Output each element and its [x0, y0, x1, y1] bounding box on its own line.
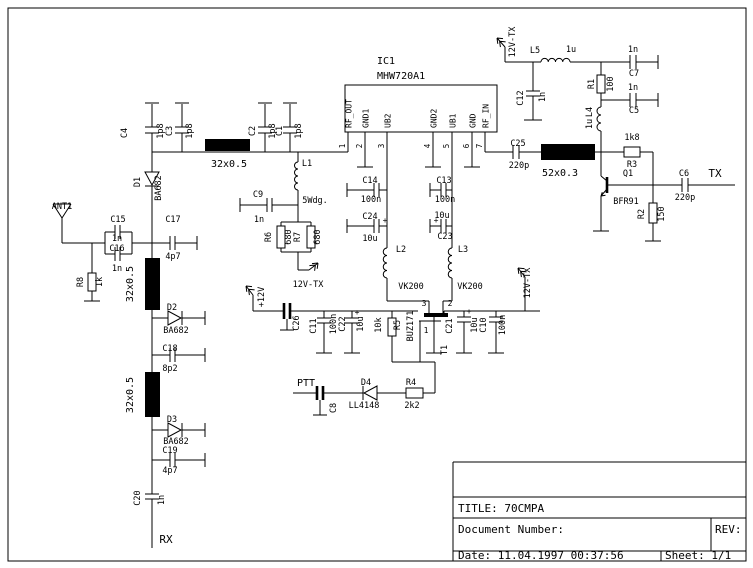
- c20-ref: C20: [133, 490, 143, 505]
- l4-val: 1u: [585, 119, 595, 129]
- c3-val: 1p8: [185, 123, 195, 138]
- ic-text: IC1 MHW720A1: [377, 56, 425, 82]
- ic1-pin-name-ub2: UB2: [384, 113, 393, 128]
- c11-ref: C11: [309, 318, 319, 333]
- cap-c26-symbol: [284, 303, 290, 319]
- r2-val: 150: [657, 206, 667, 221]
- r6-ref: R6: [264, 232, 274, 242]
- r5-val: 10k: [374, 317, 384, 332]
- resistor-r3: [624, 147, 640, 157]
- ic1-pin-name-gnd1: GND1: [362, 109, 371, 128]
- c3-ref: C3: [165, 126, 175, 136]
- ic1-pin-number-5: 5: [442, 144, 451, 149]
- l5-val: 1u: [566, 45, 576, 55]
- r4-ref: R4: [406, 378, 416, 388]
- d2-val: BA682: [163, 326, 189, 336]
- c6-ref: C6: [679, 169, 689, 179]
- c19-val: 4p7: [162, 466, 177, 476]
- supply-12vtx-top: 12V-TX: [508, 26, 518, 58]
- r4-val: 2k2: [404, 401, 419, 411]
- c17-val: 4p7: [165, 252, 180, 262]
- ic1-pin-name-rf_in: RF_IN: [482, 104, 491, 128]
- c21-ref: C21: [445, 318, 455, 333]
- ic1-pin-number-2: 2: [355, 144, 364, 149]
- c4-ref: C4: [120, 128, 130, 138]
- c18-val: 8p2: [162, 364, 177, 374]
- d1-val: BA682: [154, 175, 164, 201]
- c8-ref: C8: [329, 403, 339, 413]
- c12-ref: C12: [516, 90, 526, 105]
- ic1-pin-name-gnd: GND: [469, 113, 478, 128]
- t1-pin3: 3: [422, 299, 427, 308]
- ic1-pin-number-1: 1: [338, 144, 347, 149]
- c5-val: 1n: [628, 83, 638, 93]
- rx-port: RX: [159, 533, 173, 546]
- c14-val: 100n: [361, 195, 381, 205]
- tx-port: TX: [708, 167, 722, 180]
- c5-ref: C5: [629, 106, 639, 116]
- q1-ref: Q1: [623, 169, 633, 179]
- resistor-r4: [406, 388, 423, 398]
- l1-note: 5Wdg.: [302, 196, 328, 206]
- c24-plus: +: [383, 216, 388, 225]
- coax2-label: 32x0.5: [125, 266, 136, 302]
- coax-32x05-left-lower: [145, 372, 160, 417]
- d3-ref: D3: [167, 415, 177, 425]
- ic1-part: MHW720A1: [377, 71, 425, 82]
- ic1-ref: IC1: [377, 56, 395, 67]
- r1-ref: R1: [587, 79, 597, 89]
- c19-ref: C19: [162, 446, 177, 456]
- r5-ref: R5: [393, 320, 403, 330]
- l2-ref: L2: [396, 245, 406, 255]
- d4-val: LL4148: [349, 401, 380, 411]
- schematic-page: IC1 MHW720A1 TITLE: 70CMPA Document Numb…: [0, 0, 753, 568]
- q1-val: BFR91: [613, 197, 639, 207]
- d2-ref: D2: [167, 303, 177, 313]
- c14-ref: C14: [362, 176, 377, 186]
- ant-ref: ANT1: [52, 202, 72, 212]
- r7-ref: R7: [293, 232, 303, 242]
- c20-val: 1n: [157, 495, 167, 505]
- c25-val: 220p: [509, 161, 529, 171]
- c17-ref: C17: [165, 215, 180, 225]
- c26-ref: C26: [292, 315, 302, 330]
- c9-val: 1n: [254, 215, 264, 225]
- l2-val: VK200: [398, 282, 424, 292]
- l1-ref: L1: [302, 159, 312, 169]
- t1-pin2: 2: [448, 299, 453, 308]
- l3-ref: L3: [458, 245, 468, 255]
- coax-32x05-left-upper: [145, 258, 160, 310]
- c1-val: 1p8: [294, 123, 304, 138]
- supply-12vtx-mid: 12V-TX: [293, 280, 325, 290]
- c24-val: 10u: [362, 234, 377, 244]
- r7-val: 680: [313, 229, 323, 244]
- diode-d2: [168, 311, 181, 325]
- supply-12vtx-right: 12V-TX: [523, 267, 533, 299]
- coax1-label: 32x0.5: [211, 159, 247, 170]
- t1-val: BUZ171: [406, 311, 416, 342]
- c10-ref: C10: [479, 317, 489, 332]
- c9-ref: C9: [253, 190, 263, 200]
- c16-ref: C16: [109, 244, 124, 254]
- c6-val: 220p: [675, 193, 695, 203]
- c22-val: 10u: [356, 316, 366, 331]
- r8-ref: R8: [76, 277, 86, 287]
- coax-52x03: [541, 144, 595, 160]
- schematic-canvas: IC1 MHW720A1 TITLE: 70CMPA Document Numb…: [0, 0, 753, 568]
- c16-val: 1n: [112, 264, 122, 274]
- c22-ref: C22: [338, 316, 348, 331]
- title-block-text: TITLE: 70CMPA Document Number: REV: Date…: [458, 502, 742, 562]
- rev-text: REV:: [715, 523, 742, 536]
- ic1-pin-number-4: 4: [423, 143, 432, 148]
- c10-val: 100n: [498, 315, 508, 335]
- c7-ref: C7: [629, 69, 639, 79]
- l5-ref: L5: [530, 46, 540, 56]
- coax-32x05-top: [205, 139, 250, 151]
- c25-ref: C25: [510, 139, 525, 149]
- c24-ref: C24: [362, 212, 377, 222]
- diode-d4: [364, 386, 377, 400]
- c7-val: 1n: [628, 45, 638, 55]
- r8-val: 1k: [95, 277, 105, 287]
- resistor-r1: [597, 75, 605, 93]
- ic1-pin-name-rf_out: RF_OUT: [345, 99, 354, 128]
- c18-ref: C18: [162, 344, 177, 354]
- r2-ref: R2: [637, 209, 647, 219]
- c13-val: 100n: [435, 195, 455, 205]
- c12-val: 1n: [538, 92, 548, 102]
- c15-val: 1n: [112, 234, 122, 244]
- ic1-pin-number-3: 3: [377, 144, 386, 149]
- resistor-r2: [649, 203, 657, 223]
- d1-ref: D1: [133, 177, 143, 187]
- coax3-label: 32x0.5: [125, 377, 136, 413]
- document-number-text: Document Number:: [458, 523, 564, 536]
- ic1-pin-name-ub1: UB1: [449, 113, 458, 128]
- ptt-port: PTT: [297, 378, 315, 389]
- supply-plus12v: +12V: [257, 287, 267, 307]
- c21-plus: +: [467, 307, 472, 316]
- l3-val: VK200: [457, 282, 483, 292]
- c1-ref: C1: [275, 126, 285, 136]
- r1-val: 100: [606, 76, 616, 91]
- d4-ref: D4: [361, 378, 371, 388]
- c13-ref: C13: [436, 176, 451, 186]
- ic1-pin-name-gnd2: GND2: [430, 109, 439, 128]
- c23-ref: C23: [437, 232, 452, 242]
- c23-plus: +: [434, 216, 439, 225]
- ic1-pin-number-6: 6: [462, 143, 471, 148]
- title-text: TITLE: 70CMPA: [458, 502, 544, 515]
- c2-ref: C2: [248, 126, 258, 136]
- t1-ref: T1: [440, 345, 450, 355]
- r3-val: 1k8: [624, 133, 639, 143]
- l4-ref: L4: [585, 107, 595, 117]
- ic1-pin-number-7: 7: [475, 144, 484, 149]
- coax4-label: 52x0.3: [542, 168, 578, 179]
- t1-pin1: 1: [424, 326, 429, 335]
- c15-ref: C15: [110, 215, 125, 225]
- diode-d3: [168, 423, 181, 437]
- cap-c8-symbol: [317, 386, 323, 400]
- c22-plus: +: [355, 308, 360, 317]
